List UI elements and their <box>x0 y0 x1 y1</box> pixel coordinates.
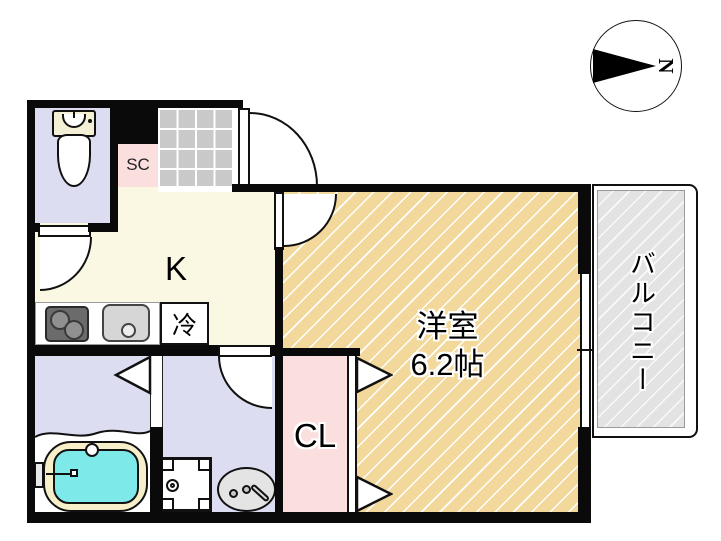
wall-kitchen-right <box>275 247 283 512</box>
western-room-size-label: 6.2帖 <box>380 342 515 380</box>
washroom-door-leaf <box>218 345 272 357</box>
wall-bath-washroom-lower <box>150 427 163 512</box>
bathtub-overflow-circle <box>85 443 99 457</box>
pan-drain-inner <box>170 483 175 488</box>
refrigerator-label: 冷 <box>172 306 197 342</box>
washing-machine-pan-icon <box>160 457 212 512</box>
entrance-door-arc <box>250 112 318 186</box>
pan-corner-tab <box>163 460 174 471</box>
floor-plan: SC バルコニー <box>0 0 721 541</box>
compass-needle-icon <box>593 49 656 83</box>
sink-drain <box>121 323 136 338</box>
wall-right-lower-stub <box>578 427 591 523</box>
bathroom-wave-line <box>35 424 150 442</box>
wall-closet-top <box>275 348 360 356</box>
washbasin-faucet-circle <box>229 489 238 498</box>
toilet-tank-handle <box>73 112 75 118</box>
sink-icon <box>102 304 150 342</box>
bathroom-door-triangle-icon <box>112 355 152 395</box>
refrigerator-box: 冷 <box>160 302 209 345</box>
wall-toilet-bottom-right <box>88 223 118 232</box>
compass-north-label: N <box>653 53 679 79</box>
wall-left <box>27 100 35 523</box>
western-room-door-leaf <box>274 192 284 250</box>
entrance-tile <box>158 108 232 187</box>
bath-faucet-knob <box>70 469 78 477</box>
closet-door-triangle-bottom-icon <box>355 475 393 513</box>
pan-corner-tab <box>198 460 209 471</box>
toilet-door-leaf <box>38 225 91 237</box>
wall-entrance-block <box>115 100 158 144</box>
entrance-step <box>158 186 232 192</box>
wall-right-upper-stub <box>578 184 591 274</box>
stove-burner <box>64 320 84 340</box>
toilet-tank-dot <box>88 119 92 123</box>
stove-icon <box>45 306 89 342</box>
wall-kitchen-bath <box>27 345 218 356</box>
shoe-closet: SC <box>118 142 158 187</box>
wall-bottom <box>27 512 591 523</box>
window-mullion-tick <box>577 349 594 351</box>
western-room-label: 洋室 <box>380 304 515 342</box>
balcony-label: バルコニー <box>627 232 657 412</box>
wall-north <box>232 184 584 192</box>
bath-faucet-icon <box>34 462 44 488</box>
pan-corner-tab <box>163 498 174 509</box>
entrance-door-leaf <box>238 108 250 188</box>
pan-corner-tab <box>198 498 209 509</box>
bathtub-water <box>53 449 139 504</box>
closet-label: CL <box>283 415 347 457</box>
toilet-icon <box>52 110 96 137</box>
kitchen-label: K <box>146 250 206 288</box>
washbasin-faucet-circle <box>242 485 251 494</box>
compass: N <box>590 20 682 112</box>
shoe-closet-label: SC <box>126 155 150 175</box>
wall-toilet-bottom-left <box>27 223 40 232</box>
